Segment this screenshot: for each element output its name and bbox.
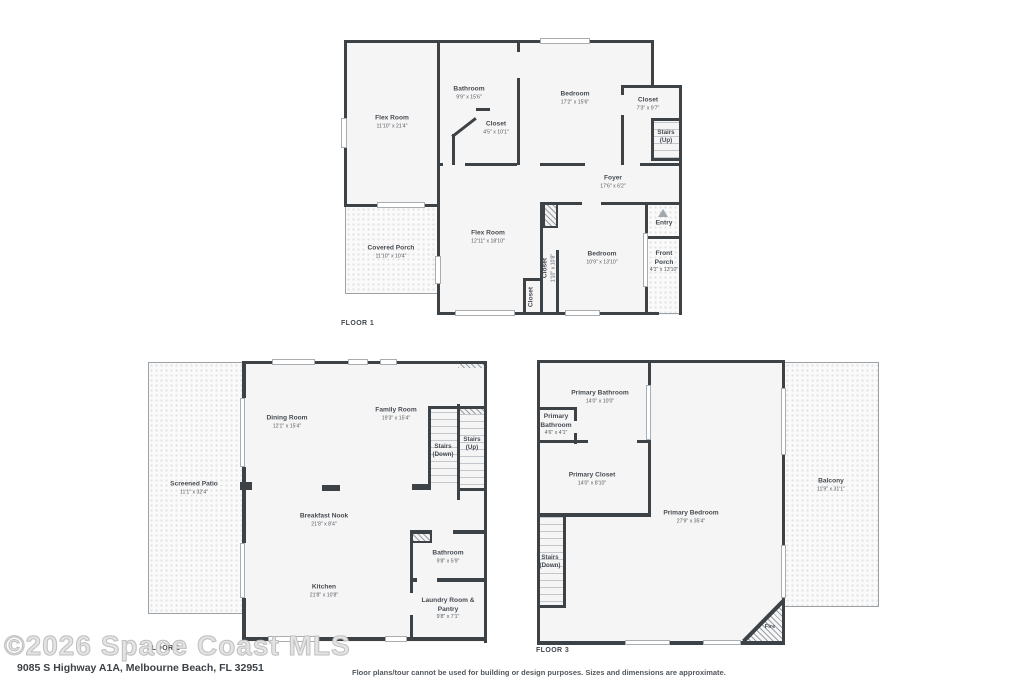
wall-segment: [651, 40, 654, 87]
wall-stub: [322, 485, 340, 491]
room-label-breakfast-nook: Breakfast Nook 21'8" x 8'4": [300, 512, 348, 527]
wall-segment: [452, 134, 455, 165]
room-label-balcony: Balcony 11'9" x 31'1": [817, 477, 845, 492]
room-label-screened-patio: Screened Patio 11'1" x 32'4": [170, 480, 218, 495]
wall-segment: [537, 360, 785, 363]
sliding-door-marker: [781, 388, 786, 455]
disclaimer-text: Floor plans/tour cannot be used for buil…: [352, 668, 726, 677]
wall-segment: [621, 85, 624, 95]
stairs-up-label-floor2: Stairs (Up): [463, 436, 480, 452]
mls-watermark: ©2026 Space Coast MLS: [4, 630, 351, 662]
wall-segment: [460, 488, 487, 491]
wall-segment: [537, 407, 577, 410]
wall-segment: [621, 85, 682, 88]
wall-segment: [679, 87, 682, 315]
stairs-down-label-floor2: Stairs (Down): [433, 443, 454, 459]
floor-1-title: FLOOR 1: [341, 320, 374, 327]
room-label-family-room: Family Room 19'3" x 15'4": [375, 406, 416, 421]
room-label-primary-bathroom-small: Primary Bathroom 4'6" x 4'1": [537, 413, 575, 437]
window-marker: [377, 202, 425, 208]
wall-segment: [601, 202, 682, 205]
sliding-door-marker: [240, 543, 245, 598]
room-label-primary-closet: Primary Closet 14'0" x 8'10": [569, 471, 616, 486]
wall-stub: [240, 482, 252, 490]
room-label-flex-room-2: Flex Room 12'11" x 18'10": [471, 229, 505, 244]
wall-segment: [523, 278, 526, 315]
room-label-closet-bedroom: Closet 7'3" x 9'7": [637, 96, 660, 111]
property-address: 9085 S Highway A1A, Melbourne Beach, FL …: [17, 662, 264, 674]
wall-segment: [537, 440, 588, 443]
room-label-dining-room: Dining Room 12'1" x 15'4": [266, 414, 307, 429]
wall-segment: [242, 361, 246, 398]
wall-segment: [648, 360, 651, 387]
room-label-covered-porch: Covered Porch 11'10" x 10'4": [368, 244, 415, 259]
wall-segment: [484, 361, 487, 643]
wall-segment: [648, 236, 682, 239]
wall-segment: [242, 467, 246, 543]
sliding-door-marker: [781, 545, 786, 598]
wall-segment: [537, 513, 651, 517]
wall-segment: [621, 115, 624, 165]
wall-segment: [563, 517, 566, 607]
stairs-down-label-floor3: Stairs (Down): [540, 554, 561, 570]
window-marker: [385, 636, 407, 642]
wall-segment: [453, 530, 487, 534]
room-label-closet-small: Closet: [528, 287, 537, 307]
window-marker: [348, 359, 368, 365]
wall-segment: [648, 440, 651, 517]
stairs-up-label-floor1: Stairs (Up): [657, 129, 674, 145]
wall-segment: [410, 530, 432, 534]
window-marker: [380, 359, 397, 365]
wall-stub: [412, 484, 428, 490]
wall-segment: [410, 578, 417, 582]
room-label-primary-bedroom: Primary Bedroom 27'9" x 35'4": [663, 509, 718, 524]
room-label-bathroom-1: Bathroom 9'9" x 15'6": [453, 85, 484, 100]
room-label-foyer: Foyer 17'6" x 6'2": [600, 174, 626, 189]
wall-segment: [651, 118, 682, 121]
room-label-kitchen: Kitchen 21'8" x 10'8": [310, 583, 338, 598]
wall-segment: [637, 440, 651, 443]
window-marker: [272, 359, 315, 365]
window-marker: [565, 310, 600, 316]
entry-arrow-icon: [658, 209, 668, 217]
room-label-laundry-pantry: Laundry Room & Pantry 9'8" x 7'1": [415, 597, 481, 621]
wall-segment: [428, 406, 431, 490]
sliding-door-marker: [240, 398, 245, 467]
floor-3-title: FLOOR 3: [536, 647, 569, 654]
wall-segment: [437, 578, 487, 582]
wall-segment: [651, 158, 682, 161]
wall-segment: [537, 360, 540, 645]
fireplace-label: Fire: [765, 624, 776, 632]
room-label-closet-bath: Closet 4'5" x 10'1": [483, 120, 509, 135]
wall-segment: [640, 163, 682, 166]
wall-segment: [517, 40, 520, 52]
room-label-entry: Entry: [656, 220, 673, 229]
room-label-bathroom-2: Bathroom 9'8" x 5'9": [432, 549, 463, 564]
wall-segment: [540, 202, 582, 205]
wall-segment: [465, 163, 517, 166]
wall-segment: [523, 278, 540, 281]
wall-segment: [517, 78, 520, 165]
window-marker: [703, 640, 741, 645]
wall-segment: [410, 530, 413, 593]
wall-segment: [476, 108, 490, 111]
window-marker: [625, 640, 670, 645]
chase-shaft: [543, 202, 558, 228]
room-label-primary-bathroom: Primary Bathroom 14'0" x 10'0": [571, 389, 629, 404]
window-marker: [341, 118, 347, 148]
room-label-bedroom-1: Bedroom 17'2" x 15'6": [561, 90, 590, 105]
room-label-flex-room-1: Flex Room 11'10" x 21'4": [375, 114, 409, 129]
room-label-front-porch: Front Porch 4'1" x 13'10": [646, 250, 682, 274]
room-label-closet-hall: Closet 1'10" x 10'8": [541, 254, 556, 282]
window-marker: [455, 310, 515, 316]
floor-plan-sheet: Flex Room 11'10" x 21'4" Bathroom 9'9" x…: [0, 0, 1024, 683]
wall-segment: [537, 605, 566, 608]
window-marker: [435, 256, 441, 284]
wall-segment: [410, 615, 413, 640]
window-marker: [646, 385, 651, 440]
wall-segment: [437, 163, 443, 166]
window-marker: [540, 38, 590, 44]
room-label-bedroom-2: Bedroom 10'9" x 13'10": [586, 250, 617, 265]
wall-segment: [457, 404, 460, 500]
wall-segment: [651, 118, 654, 161]
wall-segment: [344, 40, 654, 43]
wall-segment: [540, 163, 585, 166]
